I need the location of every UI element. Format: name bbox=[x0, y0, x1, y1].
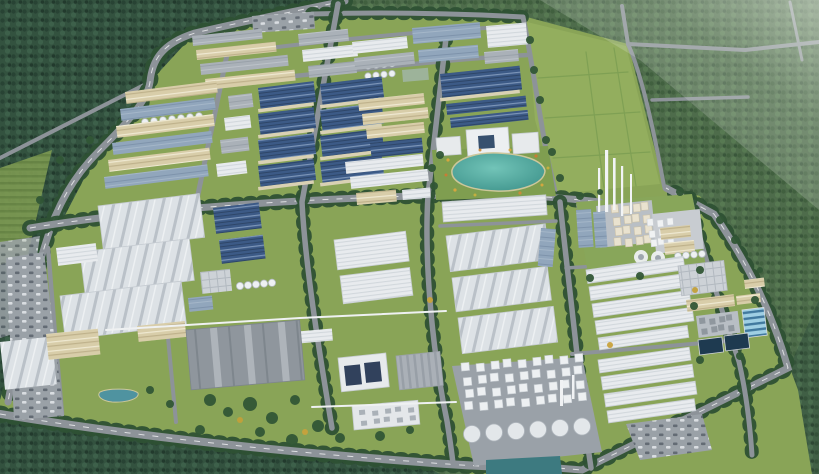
chemical-tower-cluster bbox=[623, 226, 631, 235]
process-plant-units bbox=[506, 398, 515, 407]
rooftop-units bbox=[395, 406, 401, 412]
storage-tank-row bbox=[699, 251, 706, 258]
treatment-pool bbox=[698, 337, 724, 355]
process-plant-units bbox=[518, 359, 527, 368]
cooling-tower bbox=[638, 254, 644, 260]
tree-cluster bbox=[36, 196, 44, 204]
process-plant-units bbox=[536, 396, 545, 405]
rooftop-units bbox=[410, 415, 416, 421]
process-plant-units bbox=[560, 356, 569, 365]
tree-cluster bbox=[597, 189, 603, 195]
process-plant-units bbox=[578, 392, 587, 401]
skylight-factory bbox=[678, 260, 727, 295]
flower-bed bbox=[445, 174, 448, 177]
large-silo-row bbox=[552, 420, 569, 437]
campus-glass-atrium bbox=[478, 135, 495, 149]
storage-tank-row bbox=[691, 251, 698, 258]
tree-cluster bbox=[548, 148, 556, 156]
tall-stack bbox=[621, 166, 623, 216]
process-plant-units bbox=[503, 359, 512, 368]
autumn-tree-cluster bbox=[427, 297, 433, 303]
flower-bed bbox=[479, 149, 482, 152]
tall-stack bbox=[613, 158, 616, 210]
tree-cluster bbox=[736, 352, 744, 360]
tree-cluster bbox=[696, 266, 704, 274]
substation-equipment bbox=[709, 318, 716, 325]
factory-building bbox=[486, 23, 528, 48]
chemical-tower-cluster bbox=[636, 236, 644, 245]
utility-building bbox=[188, 295, 213, 311]
process-plant-units bbox=[465, 389, 474, 398]
rooftop-units bbox=[397, 417, 403, 423]
rooftop-units bbox=[385, 408, 391, 414]
process-plant-units bbox=[576, 380, 585, 389]
chemical-tower-cluster bbox=[641, 202, 649, 211]
tree-cluster bbox=[716, 216, 724, 224]
tree-cluster bbox=[636, 272, 644, 280]
tree-cluster bbox=[751, 296, 759, 304]
process-plant-units bbox=[548, 394, 557, 403]
tree-cluster bbox=[536, 96, 544, 104]
silo-row bbox=[268, 279, 275, 286]
rooftop-units bbox=[374, 418, 380, 424]
large-silo-row bbox=[508, 423, 525, 440]
flower-bed bbox=[453, 188, 456, 191]
rooftop-units bbox=[359, 410, 365, 416]
large-silo-row bbox=[530, 421, 547, 438]
blue-roof-factory bbox=[213, 202, 262, 233]
chemical-tower-cluster bbox=[613, 217, 621, 226]
treatment-pool bbox=[724, 333, 750, 351]
tree-cluster bbox=[731, 236, 739, 244]
rooftop-units bbox=[408, 407, 414, 413]
process-plant-units bbox=[533, 357, 542, 366]
aerial-scene-canvas bbox=[0, 0, 819, 474]
process-plant-units bbox=[476, 363, 485, 372]
silo-row bbox=[244, 282, 251, 289]
process-plant-units bbox=[575, 353, 584, 362]
process-plant-units bbox=[507, 385, 516, 394]
tree-cluster bbox=[542, 136, 550, 144]
substation-equipment bbox=[711, 326, 718, 333]
flower-bed bbox=[541, 184, 544, 187]
storage-tank-row bbox=[389, 70, 395, 76]
equipment-pad bbox=[200, 269, 232, 294]
chemical-unit-cluster bbox=[649, 230, 656, 237]
glass-roof-panel bbox=[344, 364, 362, 386]
chemical-tower-cluster bbox=[625, 238, 633, 247]
chemical-tower-cluster bbox=[633, 204, 641, 213]
silo-row bbox=[252, 281, 259, 288]
tree-cluster bbox=[436, 151, 444, 159]
tree-cluster bbox=[166, 400, 174, 408]
flower-bed bbox=[474, 194, 477, 197]
process-plant-units bbox=[463, 377, 472, 386]
chemical-tower-cluster bbox=[624, 215, 632, 224]
substation-equipment bbox=[726, 314, 733, 321]
striped-warehouse bbox=[396, 351, 443, 389]
silo-row bbox=[260, 280, 267, 287]
process-plant-units bbox=[492, 388, 501, 397]
chemical-unit-cluster bbox=[647, 219, 654, 226]
tree-cluster bbox=[696, 356, 704, 364]
small-workshop bbox=[228, 93, 254, 110]
process-plant-units bbox=[478, 375, 487, 384]
lake bbox=[452, 153, 545, 191]
tree-cluster bbox=[204, 394, 216, 406]
tree-cluster bbox=[757, 267, 763, 273]
tree-cluster bbox=[526, 36, 534, 44]
glass-roof-panel bbox=[364, 361, 382, 383]
process-plant-units bbox=[490, 373, 499, 382]
tree-cluster bbox=[290, 395, 300, 405]
process-plant-units bbox=[545, 355, 554, 364]
autumn-tree-cluster bbox=[302, 429, 308, 435]
tall-stack bbox=[605, 150, 608, 212]
large-silo-row bbox=[574, 418, 591, 435]
substation-equipment bbox=[718, 324, 725, 331]
process-plant-units bbox=[534, 384, 543, 393]
autumn-tree-cluster bbox=[607, 342, 613, 348]
stack bbox=[560, 380, 563, 406]
flower-bed bbox=[446, 158, 449, 161]
tree-cluster bbox=[243, 397, 257, 411]
flower-bed bbox=[518, 191, 521, 194]
process-plant-units bbox=[532, 369, 541, 378]
tree-cluster bbox=[56, 156, 64, 164]
substation-equipment bbox=[701, 328, 708, 335]
campus-building-east bbox=[512, 132, 539, 154]
storage-tank-row bbox=[381, 71, 387, 77]
substation-equipment bbox=[699, 317, 706, 324]
tree-cluster bbox=[406, 426, 414, 434]
tree-cluster bbox=[266, 412, 278, 424]
tree-cluster bbox=[375, 431, 385, 441]
chemical-tower-cluster bbox=[614, 237, 622, 246]
office-block bbox=[46, 329, 100, 360]
process-plant-units bbox=[479, 402, 488, 411]
process-plant-units bbox=[461, 362, 470, 371]
chemical-unit-cluster bbox=[667, 218, 674, 225]
chemical-tower-cluster bbox=[632, 214, 640, 223]
substation-equipment bbox=[728, 325, 735, 332]
process-plant-units bbox=[505, 374, 514, 383]
tree-cluster bbox=[586, 274, 594, 282]
autumn-tree-cluster bbox=[237, 417, 243, 423]
substation-equipment bbox=[719, 316, 726, 323]
flower-bed bbox=[534, 154, 537, 157]
flower-bed bbox=[509, 149, 512, 152]
large-silo-row bbox=[464, 426, 481, 443]
rooftop-units bbox=[384, 416, 390, 422]
tree-cluster bbox=[556, 174, 564, 182]
autumn-tree-cluster bbox=[692, 287, 698, 293]
process-plant-units bbox=[549, 382, 558, 391]
tree-cluster bbox=[428, 164, 436, 172]
tree-cluster bbox=[530, 66, 538, 74]
tree-cluster bbox=[430, 182, 438, 190]
silo-row bbox=[236, 282, 243, 289]
process-plant-units bbox=[562, 368, 571, 377]
tree-cluster bbox=[312, 420, 324, 432]
process-plant-units bbox=[519, 383, 528, 392]
flower-bed bbox=[547, 167, 550, 170]
process-plant-units bbox=[464, 401, 473, 410]
rooftop-units bbox=[361, 420, 367, 426]
tree-cluster bbox=[676, 188, 684, 196]
process-plant-units bbox=[491, 361, 500, 370]
process-plant-units bbox=[477, 387, 486, 396]
utility-building bbox=[576, 209, 594, 248]
flat-gray-logistics-building bbox=[186, 320, 305, 390]
process-plant-units bbox=[563, 395, 572, 404]
tree-cluster bbox=[146, 386, 154, 394]
process-plant-units bbox=[547, 370, 556, 379]
tall-stack bbox=[630, 174, 632, 214]
stack bbox=[572, 375, 575, 399]
utility-building bbox=[402, 68, 429, 82]
industrial-park-aerial-rendering bbox=[0, 0, 819, 474]
tree-cluster bbox=[576, 192, 584, 200]
tree-cluster bbox=[286, 434, 298, 446]
tree-cluster bbox=[195, 425, 205, 435]
process-plant-units bbox=[494, 400, 503, 409]
chemical-unit-cluster bbox=[657, 220, 664, 227]
tree-cluster bbox=[335, 433, 345, 443]
chemical-tower-cluster bbox=[615, 227, 623, 236]
process-plant-units bbox=[521, 398, 530, 407]
chemical-unit-cluster bbox=[651, 239, 658, 246]
tree-cluster bbox=[86, 136, 94, 144]
tree-cluster bbox=[690, 302, 698, 310]
chemical-tower-cluster bbox=[634, 227, 642, 236]
large-silo-row bbox=[486, 424, 503, 441]
tree-cluster bbox=[223, 407, 233, 417]
rooftop-units bbox=[372, 410, 378, 416]
process-plant-units bbox=[520, 371, 529, 380]
utility-building bbox=[593, 211, 607, 248]
tree-cluster bbox=[255, 427, 265, 437]
scene-root bbox=[0, 0, 819, 474]
process-plant-units bbox=[574, 366, 583, 375]
